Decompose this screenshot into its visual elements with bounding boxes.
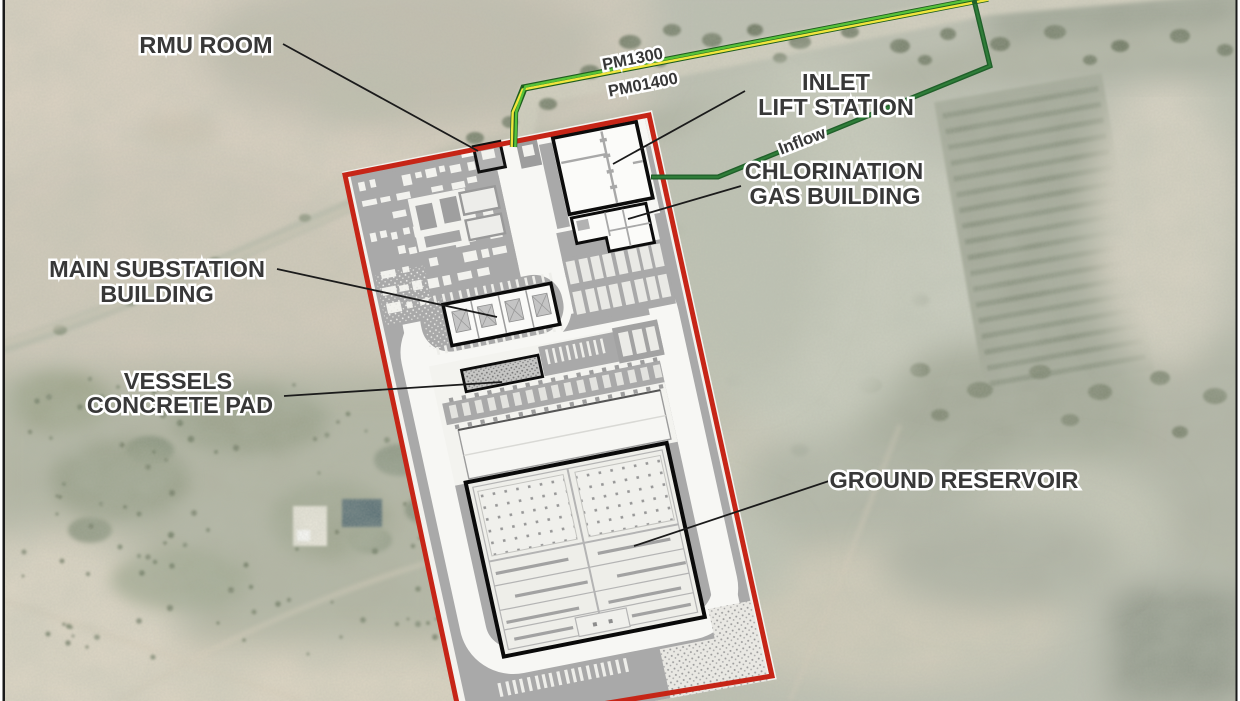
svg-text:MAIN SUBSTATION: MAIN SUBSTATION [49, 256, 265, 282]
svg-text:LIFT STATION: LIFT STATION [758, 94, 914, 120]
svg-text:INLET: INLET [802, 69, 871, 95]
svg-text:RMU ROOM: RMU ROOM [139, 32, 272, 58]
svg-text:CHLORINATION: CHLORINATION [745, 158, 923, 184]
svg-text:GAS BUILDING: GAS BUILDING [749, 183, 920, 209]
svg-text:VESSELS: VESSELS [124, 368, 232, 394]
svg-text:CONCRETE PAD: CONCRETE PAD [87, 392, 273, 418]
svg-text:GROUND RESERVOIR: GROUND RESERVOIR [830, 467, 1079, 493]
svg-text:BUILDING: BUILDING [100, 281, 214, 307]
